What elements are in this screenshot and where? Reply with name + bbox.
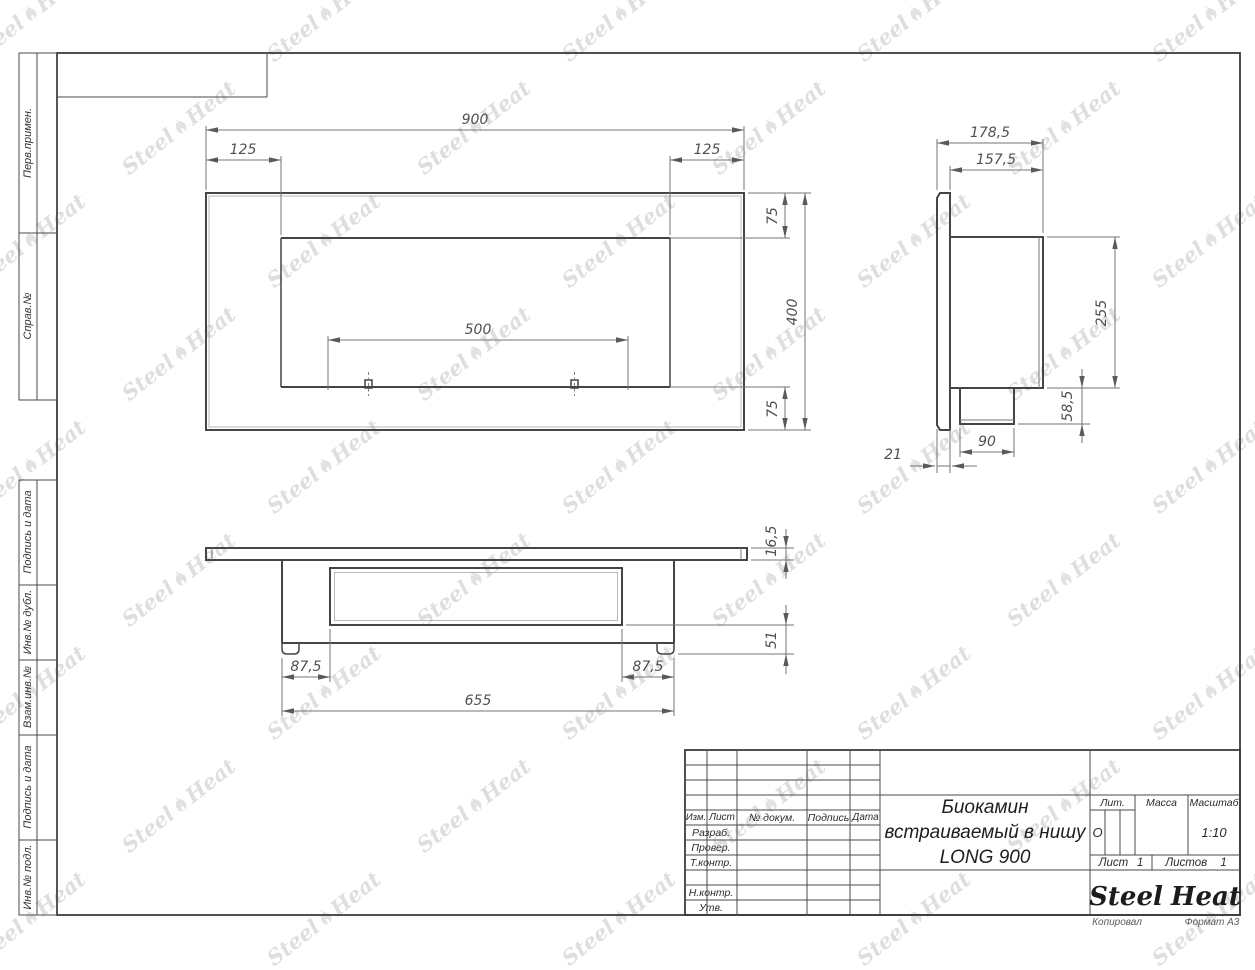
doc-title-line1: Биокамин	[941, 795, 1028, 820]
tb-mass-value	[1135, 810, 1188, 855]
tb-lit-value: О	[1090, 810, 1105, 855]
doc-title-line3: LONG 900	[940, 845, 1031, 870]
dim-bottom-body-width: 655	[465, 693, 492, 709]
tb-sheets-label: Листов	[1165, 857, 1207, 869]
tb-sheet-value: 1	[1137, 857, 1143, 869]
tb-row-razrab: Разраб.	[685, 825, 737, 840]
tb-col-list: Лист	[707, 810, 737, 825]
dim-front-top-margin: 75	[765, 207, 781, 225]
doc-title: Биокамин встраиваемый в нишу LONG 900	[882, 795, 1088, 870]
dim-side-total-depth: 178,5	[970, 125, 1010, 141]
tb-col-izm: Изм.	[685, 810, 707, 825]
tb-scale-value: 1:10	[1188, 810, 1240, 855]
tb-col-data: Дата	[850, 810, 881, 825]
dim-front-height: 400	[785, 299, 801, 326]
dim-front-width: 900	[462, 112, 489, 128]
tb-row-prover: Провер.	[685, 840, 737, 855]
dim-side-spigot-height: 58,5	[1060, 390, 1076, 421]
tb-sheets-value: 1	[1220, 857, 1226, 869]
tb-sheet-label: Лист	[1099, 857, 1129, 869]
dim-front-left-offset: 125	[230, 142, 257, 158]
tb-lit-label: Лит.	[1090, 795, 1135, 810]
copied-note: Копировал	[1077, 915, 1157, 930]
dim-front-bottom-margin: 75	[765, 400, 781, 418]
front-view: 900 125 125 500 75 400 75	[206, 112, 811, 430]
logo-steel: Steel	[1089, 882, 1163, 912]
dim-side-spigot-width: 90	[978, 434, 996, 450]
dim-bottom-under-depth: 51	[764, 631, 780, 649]
bottom-view: 16,5 51 87,5 87,5 655	[206, 525, 794, 716]
tb-scale-label: Масштаб	[1188, 795, 1240, 810]
tb-col-docnum: № докум.	[737, 810, 807, 825]
format-note: Формат А3	[1172, 915, 1252, 930]
dim-front-burner-span: 500	[465, 322, 492, 338]
company-logo: Steel Heat	[1092, 874, 1238, 912]
dim-side-flange-thickness: 21	[884, 447, 902, 463]
dim-bottom-left-inset: 87,5	[290, 659, 321, 675]
drawing-sheet: SteelHeatSteelHeatSteelHeatSteelHeatStee…	[0, 0, 1255, 970]
dim-side-body-height: 255	[1094, 300, 1110, 327]
logo-heat: Heat	[1171, 882, 1241, 912]
tb-mass-label: Масса	[1135, 795, 1188, 810]
dim-bottom-right-inset: 87,5	[632, 659, 663, 675]
tb-row-utv: Утв.	[685, 900, 737, 915]
side-view: 178,5 157,5 255 58,5 90 21	[884, 125, 1120, 473]
doc-title-line2: встраиваемый в нишу	[884, 820, 1085, 845]
tb-row-nkontr: Н.контр.	[685, 885, 737, 900]
dim-bottom-plate-thickness: 16,5	[764, 525, 780, 556]
tb-row-tkontr: Т.контр.	[685, 855, 737, 870]
sheet-frame	[57, 53, 1240, 915]
dim-side-body-depth: 157,5	[976, 152, 1016, 168]
tb-sheets-cell: Листов 1	[1152, 855, 1240, 870]
dim-front-right-offset: 125	[694, 142, 721, 158]
tb-col-podpis: Подпись	[807, 810, 850, 825]
tb-sheet-cell: Лист 1	[1090, 855, 1152, 870]
